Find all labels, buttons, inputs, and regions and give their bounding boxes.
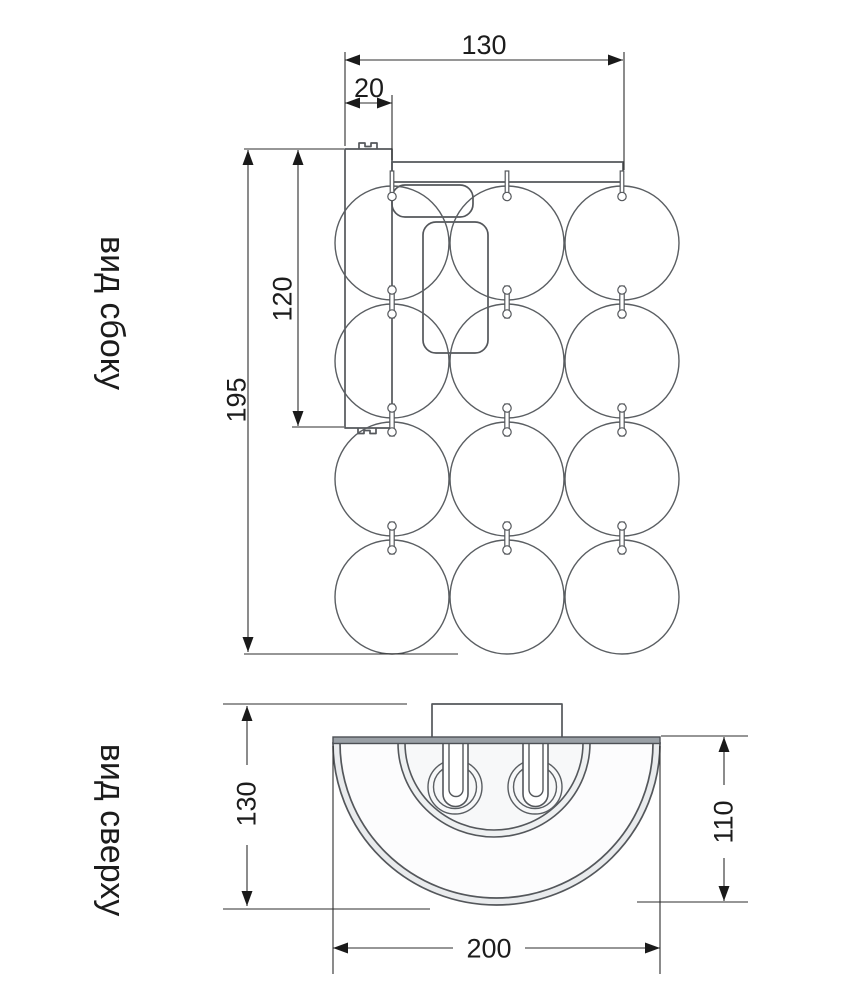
dim-value: 110 xyxy=(708,800,738,843)
link-ring xyxy=(388,522,396,530)
hanger-ring xyxy=(503,192,511,200)
arrowhead-down xyxy=(293,411,304,426)
dim-side-plate-height: 120 xyxy=(267,150,344,427)
glass-disc xyxy=(450,540,564,654)
dim-value: 130 xyxy=(231,781,261,826)
glass-disc xyxy=(565,186,679,300)
dim-side-total-height: 195 xyxy=(221,149,458,654)
arrowhead-left xyxy=(333,943,348,954)
arrowhead-right xyxy=(608,55,623,66)
link-ring xyxy=(618,286,626,294)
arrowhead-right xyxy=(645,943,660,954)
link-ring xyxy=(503,546,511,554)
link-ring xyxy=(503,428,511,436)
arrowhead-up xyxy=(242,706,253,721)
link-ring xyxy=(388,428,396,436)
side-arm xyxy=(392,185,473,217)
hanger-pin xyxy=(620,171,624,193)
side-housing xyxy=(423,222,488,353)
glass-disc xyxy=(565,540,679,654)
link-ring xyxy=(618,522,626,530)
link-ring xyxy=(618,428,626,436)
disc-connectors xyxy=(388,171,626,554)
shade-top-edge xyxy=(333,737,660,744)
top-view: 130 110 200 вид сверху xyxy=(93,704,748,974)
hanger-pin xyxy=(390,171,394,193)
glass-disc xyxy=(335,540,449,654)
dim-value: 195 xyxy=(221,377,251,422)
side-view: 130 20 195 120 вид сбоку xyxy=(93,30,679,654)
dim-value: 120 xyxy=(267,276,297,321)
glass-disc xyxy=(450,304,564,418)
glass-disc xyxy=(450,422,564,536)
glass-disc xyxy=(565,422,679,536)
top-wall-plate xyxy=(432,704,562,738)
link-ring xyxy=(388,546,396,554)
link-ring xyxy=(503,310,511,318)
link-ring xyxy=(388,404,396,412)
wall-plate-top-clip xyxy=(359,143,377,149)
link-ring xyxy=(503,522,511,530)
glass-disc xyxy=(565,304,679,418)
arrowhead-down xyxy=(242,891,253,906)
hanger-ring xyxy=(618,192,626,200)
link-ring xyxy=(618,404,626,412)
hanger-pin xyxy=(505,171,509,193)
arrowhead-up xyxy=(719,737,730,752)
arrowhead-left xyxy=(345,55,360,66)
link-ring xyxy=(388,310,396,318)
link-ring xyxy=(618,546,626,554)
dim-value: 20 xyxy=(354,73,384,103)
arrowhead-up xyxy=(293,150,304,165)
glass-disc xyxy=(450,186,564,300)
hanger-ring xyxy=(388,192,396,200)
link-ring xyxy=(503,404,511,412)
side-view-label: вид сбоку xyxy=(93,236,131,390)
arrowhead-down xyxy=(719,886,730,901)
dim-value: 200 xyxy=(466,933,511,963)
technical-drawing-page: 130 20 195 120 вид сбоку xyxy=(0,0,842,1000)
link-ring xyxy=(503,286,511,294)
glass-disc xyxy=(335,422,449,536)
arrowhead-up xyxy=(243,150,254,165)
top-view-label: вид сверху xyxy=(93,744,131,916)
dim-value: 130 xyxy=(461,30,506,60)
lamp-drawing-svg: 130 20 195 120 вид сбоку xyxy=(0,0,842,1000)
link-ring xyxy=(618,310,626,318)
link-ring xyxy=(388,286,396,294)
arrowhead-down xyxy=(243,637,254,652)
